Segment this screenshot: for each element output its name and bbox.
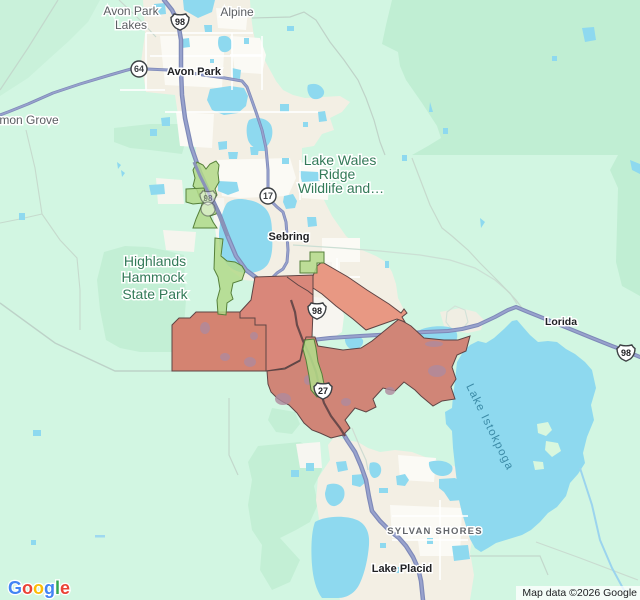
svg-text:Alpine: Alpine: [220, 5, 254, 19]
svg-text:Highlands: Highlands: [124, 253, 186, 269]
svg-text:Avon Park: Avon Park: [167, 66, 222, 78]
svg-text:SYLVAN SHORES: SYLVAN SHORES: [387, 526, 482, 537]
svg-text:98: 98: [621, 348, 631, 358]
svg-text:Google: Google: [8, 578, 70, 598]
svg-text:Avon Park: Avon Park: [103, 4, 159, 18]
svg-text:17: 17: [263, 191, 273, 201]
svg-text:State Park: State Park: [122, 286, 188, 302]
svg-text:Lake Placid: Lake Placid: [372, 563, 433, 575]
svg-text:Wildlife and…: Wildlife and…: [298, 180, 384, 196]
svg-text:Hammock: Hammock: [121, 269, 185, 285]
svg-text:Sebring: Sebring: [269, 231, 310, 243]
svg-text:Map data ©2026 Google: Map data ©2026 Google: [522, 587, 637, 599]
svg-text:Lorida: Lorida: [545, 316, 577, 328]
svg-text:98: 98: [175, 17, 185, 27]
svg-text:mon Grove: mon Grove: [0, 113, 59, 127]
svg-text:Lakes: Lakes: [115, 18, 147, 32]
svg-text:64: 64: [134, 64, 144, 74]
svg-text:98: 98: [312, 306, 322, 316]
svg-text:27: 27: [318, 386, 328, 396]
